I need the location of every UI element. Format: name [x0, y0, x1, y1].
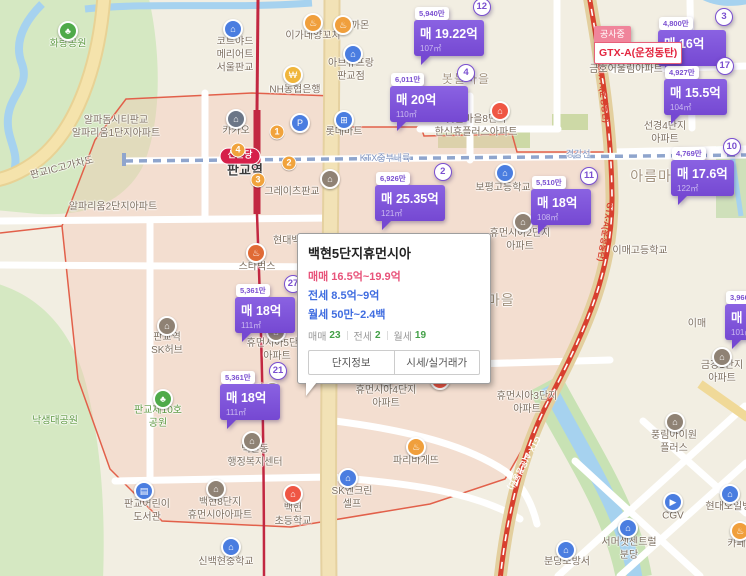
marker-tail	[397, 121, 407, 131]
label-humansia4: 휴먼시아4단지아파트	[356, 384, 417, 410]
price-marker-12[interactable]: 5,940만12매 19.22억107㎡	[414, 3, 484, 56]
label-sk-gas: SK엔크린셀프	[332, 485, 373, 511]
unit-area: 110㎡	[396, 109, 462, 118]
price-marker-27[interactable]: 5,361만27매 18억111㎡	[235, 280, 295, 333]
listing-count-badge: 3	[715, 8, 733, 26]
label-alparium1: 알파돔시티판교알파리움1단지아파트	[72, 114, 160, 140]
station-exit-2: 2	[282, 156, 297, 171]
label-gyeonggang-line: 경강선	[566, 149, 591, 161]
price-marker-21[interactable]: 5,361만21매 18억111㎡	[220, 367, 280, 420]
cinema-icon[interactable]: ▶	[663, 492, 683, 512]
apartment-icon[interactable]: ⌂	[665, 412, 685, 432]
divider	[347, 331, 348, 340]
map-canvas[interactable]: 공사중 GTX-A(운정동탄) 백현5단지휴먼시아 매매 16.5억~19.9억…	[0, 0, 746, 576]
mart-icon[interactable]: ⊞	[334, 110, 354, 130]
popup-title: 백현5단지휴먼시아	[308, 243, 480, 262]
price-marker-4[interactable]: 6,011만4매 20억110㎡	[390, 69, 468, 122]
hotel-icon[interactable]: ⌂	[223, 19, 243, 39]
unit-price: 3,960만	[726, 291, 746, 304]
marker-tail	[671, 114, 681, 124]
gas-station-icon[interactable]: ⌂	[338, 468, 358, 488]
sale-price: 매 1	[731, 307, 746, 326]
unit-area: 108㎡	[537, 212, 585, 221]
sale-price: 매 25.35억	[381, 188, 439, 207]
library-icon[interactable]: ▤	[134, 481, 154, 501]
price-marker-11[interactable]: 5,510만11매 18억108㎡	[531, 172, 591, 225]
shopping-mall-icon[interactable]: ⌂	[343, 44, 363, 64]
listing-count-badge: 21	[269, 362, 287, 380]
jeonse-price-range: 전세 8.5억~9억	[308, 287, 480, 303]
wolse-count-label: 월세	[394, 328, 412, 343]
building-icon[interactable]: ⌂	[320, 169, 340, 189]
park-tree-icon[interactable]: ♣	[153, 389, 173, 409]
popup-tail	[306, 382, 317, 396]
label-greits-pangyo: 그레이츠판교	[264, 186, 319, 199]
government-office-icon[interactable]: ⌂	[242, 431, 262, 451]
gtx-line-label: GTX-A(운정동탄)	[594, 42, 682, 64]
price-marker-10[interactable]: 4,769만10매 17.6억122㎡	[671, 143, 734, 196]
cafe-icon[interactable]: ♨	[730, 521, 746, 541]
apartment-icon[interactable]: ⌂	[206, 479, 226, 499]
unit-area: 111㎡	[226, 407, 274, 416]
unit-price: 6,926만	[376, 172, 410, 185]
apartment-icon[interactable]: ⌂	[513, 212, 533, 232]
sale-price: 매 18억	[226, 387, 274, 406]
label-ktx-line: KTX중부내륙	[360, 153, 411, 165]
label-children-library: 판교어린이도서관	[124, 498, 170, 524]
construction-status-tag: 공사중	[594, 26, 631, 42]
label-naksaengdae-park: 낙생대공원	[32, 415, 78, 428]
unit-area: 121㎡	[381, 208, 439, 217]
sale-price: 매 18억	[241, 300, 289, 319]
marker-tail	[538, 224, 548, 234]
apartment-icon[interactable]: ⌂	[712, 347, 732, 367]
label-humansia3: 휴먼시아3단지아파트	[497, 390, 558, 416]
unit-price: 5,510만	[532, 176, 566, 189]
middle-school-icon[interactable]: ⌂	[221, 537, 241, 557]
office-building-icon[interactable]: ⌂	[157, 316, 177, 336]
unit-price: 5,361만	[236, 284, 270, 297]
listing-count-badge: 12	[473, 0, 491, 16]
complex-info-popup: 백현5단지휴먼시아 매매 16.5억~19.9억 전세 8.5억~9억 월세 5…	[297, 233, 491, 384]
sale-price: 매 18억	[537, 192, 585, 211]
unit-area: 111㎡	[241, 320, 289, 329]
sale-count-label: 매매	[308, 328, 326, 343]
listing-count-badge: 10	[723, 138, 741, 156]
label-imae-hs: 이매고등학교	[612, 245, 667, 258]
sale-price: 매 17.6억	[677, 163, 728, 182]
sale-price: 매 20억	[396, 89, 462, 108]
unit-price: 6,011만	[391, 73, 424, 86]
kakao-office-icon[interactable]: ⌂	[226, 109, 246, 129]
fire-station-icon[interactable]: ⌂	[556, 540, 576, 560]
marker-tail	[242, 332, 252, 342]
gas-station-icon[interactable]: ⌂	[720, 484, 740, 504]
label-bopyeong-hs: 보평고등학교	[475, 182, 530, 195]
sale-price-range: 매매 16.5억~19.9억	[308, 268, 480, 284]
listing-counts: 매매23 전세2 월세19	[308, 328, 480, 343]
high-school-icon[interactable]: ⌂	[495, 163, 515, 183]
unit-price: 5,361만	[221, 371, 255, 384]
listing-count-badge: 2	[434, 163, 452, 181]
sale-count: 23	[329, 330, 340, 341]
label-pungrim: 풍림아이원플러스	[651, 429, 697, 455]
listing-count-badge: 11	[580, 167, 598, 185]
monthly-rent-range: 월세 50만~2.4백	[308, 306, 480, 322]
listing-count-badge: 4	[457, 64, 475, 82]
unit-price: 5,940만	[415, 7, 449, 20]
marker-tail	[227, 419, 237, 429]
parking-icon[interactable]: P	[290, 113, 310, 133]
bank-icon[interactable]: ₩	[283, 65, 303, 85]
station-exit-4: 4	[231, 143, 246, 158]
elementary-school-icon[interactable]: ⌂	[283, 484, 303, 504]
station-exit-3: 3	[251, 173, 266, 188]
label-baekhyeon8: 백현8단지휴먼시아아파트	[188, 496, 252, 522]
wolse-count: 19	[415, 330, 426, 341]
hotel-icon[interactable]: ⌂	[618, 518, 638, 538]
jeonse-count: 2	[375, 330, 381, 341]
label-alparium2: 알파리움2단지아파트	[69, 201, 157, 214]
label-imae: 이매	[688, 318, 706, 331]
complex-info-button[interactable]: 단지정보	[309, 351, 394, 374]
sale-price: 매 19.22억	[420, 23, 478, 42]
restaurant-icon[interactable]: ♨	[333, 15, 353, 35]
marker-tail	[678, 195, 688, 205]
unit-price: 4,769만	[672, 147, 706, 160]
bakery-icon[interactable]: ♨	[406, 437, 426, 457]
unit-area: 107㎡	[420, 43, 478, 52]
price-marker-2[interactable]: 6,926만2매 25.35억121㎡	[375, 168, 445, 221]
listing-count-badge: 17	[716, 57, 734, 75]
unit-area: 104㎡	[670, 102, 721, 111]
sale-price: 매 15.5억	[670, 82, 721, 101]
label-courtyard-marriott: 코트야드메리어트서울판교	[217, 36, 254, 75]
price-marker-17[interactable]: 4,927만17매 15.5억104㎡	[664, 62, 727, 115]
construction-label: 공사중 GTX-A(운정동탄)	[594, 24, 682, 64]
label-kkamon: 까몬	[351, 20, 369, 33]
station-exit-1: 1	[270, 125, 285, 140]
price-history-button[interactable]: 시세/실거래가	[394, 351, 480, 374]
starbucks-icon[interactable]: ♨	[246, 243, 266, 263]
marker-tail	[382, 220, 392, 230]
label-nh-bank: NH농협은행	[269, 84, 320, 97]
school-red-icon[interactable]: ⌂	[490, 101, 510, 121]
marker-tail	[732, 339, 742, 349]
unit-area: 122㎡	[677, 183, 728, 192]
restaurant-icon[interactable]: ♨	[303, 13, 323, 33]
unit-area: 101㎡	[731, 327, 746, 336]
label-baekhyeon-es: 백현초등학교	[275, 502, 312, 528]
label-sinbaekhyeon-ms: 신백현중학교	[198, 556, 253, 569]
marker-tail	[421, 55, 431, 65]
label-somerset: 서머셋센트럴분당	[601, 536, 656, 562]
divider	[387, 331, 388, 340]
jeonse-count-label: 전세	[354, 328, 372, 343]
unit-price: 4,927만	[665, 66, 699, 79]
price-marker-edge[interactable]: 3,960만매 1101㎡	[725, 287, 746, 340]
park-tree-icon[interactable]: ♣	[58, 21, 78, 41]
